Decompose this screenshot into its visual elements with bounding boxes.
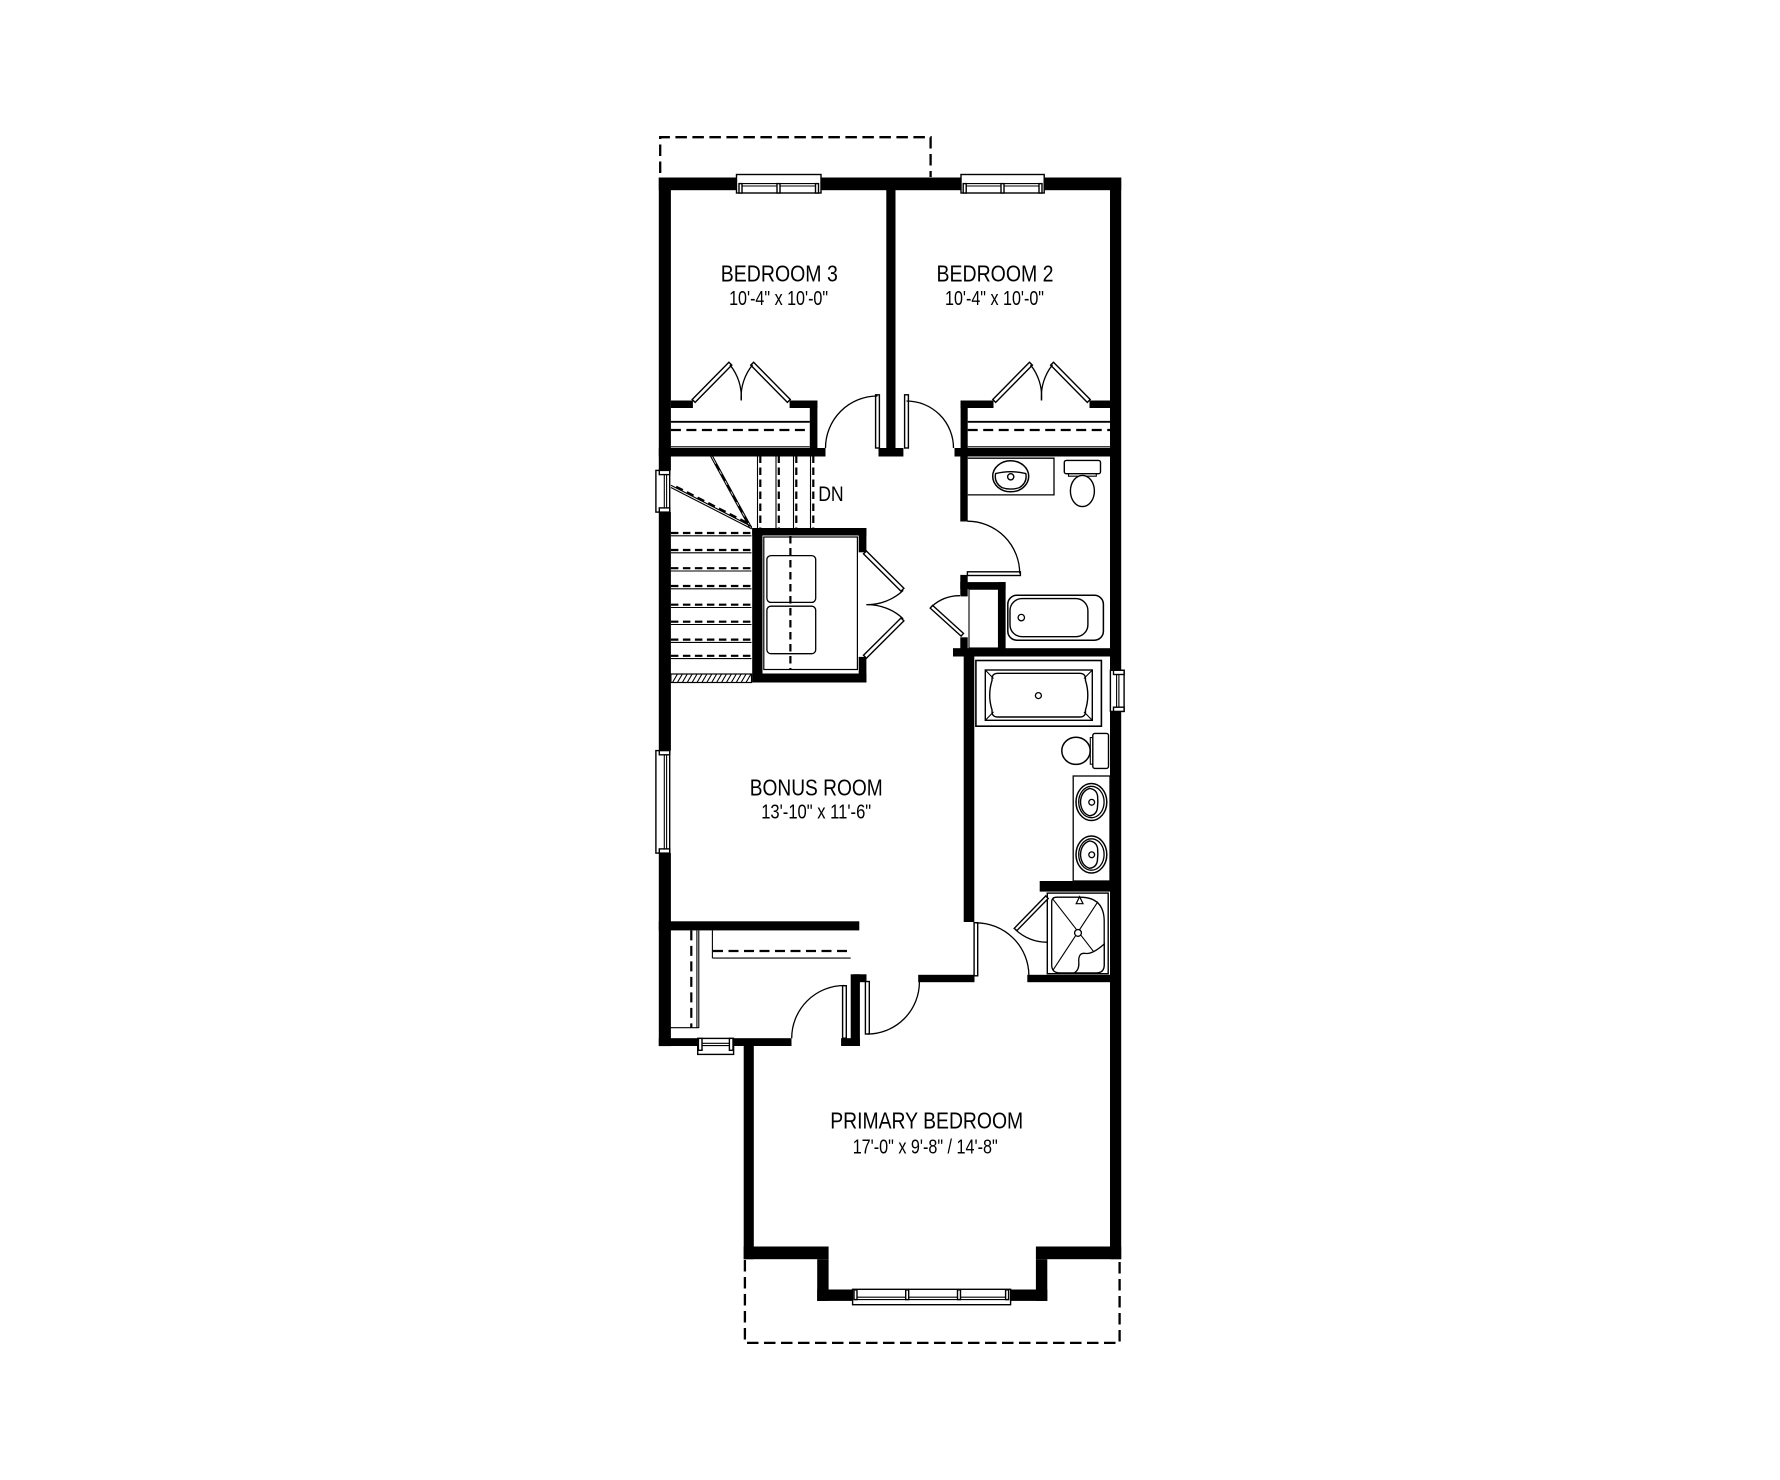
svg-text:DN: DN [818,482,844,506]
svg-text:10'-4" x 10'-0": 10'-4" x 10'-0" [945,288,1044,310]
svg-text:BEDROOM 2: BEDROOM 2 [937,260,1054,286]
svg-text:PRIMARY BEDROOM: PRIMARY BEDROOM [830,1107,1023,1133]
svg-text:17'-0" x 9'-8" / 14'-8": 17'-0" x 9'-8" / 14'-8" [853,1137,998,1159]
svg-text:10'-4" x 10'-0": 10'-4" x 10'-0" [729,288,828,310]
svg-text:BEDROOM 3: BEDROOM 3 [721,260,838,286]
svg-text:13'-10" x 11'-6": 13'-10" x 11'-6" [761,802,871,824]
svg-text:BONUS ROOM: BONUS ROOM [750,775,883,801]
